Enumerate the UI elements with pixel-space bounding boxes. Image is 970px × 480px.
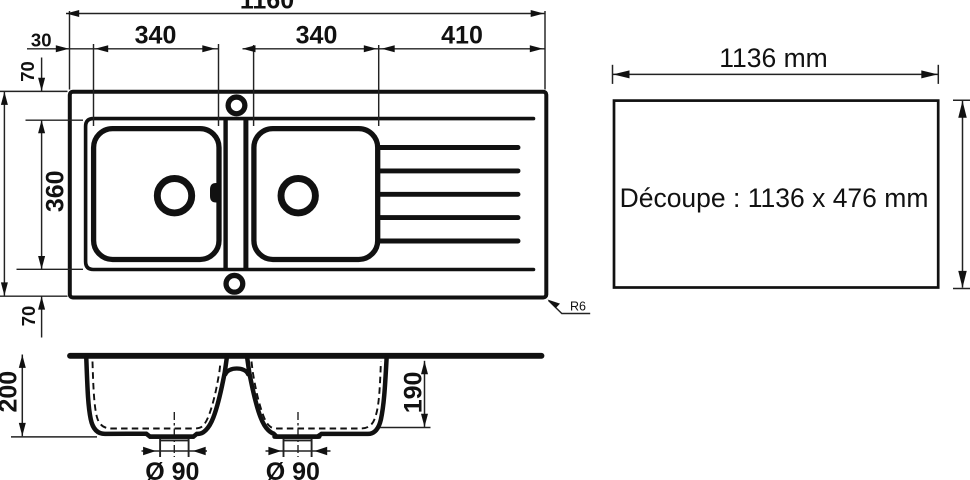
svg-text:340: 340: [296, 22, 338, 50]
svg-text:410: 410: [441, 22, 483, 50]
svg-text:1160: 1160: [240, 0, 294, 15]
svg-text:Ø 90: Ø 90: [266, 458, 320, 480]
svg-text:30: 30: [31, 29, 52, 50]
svg-text:Ø 90: Ø 90: [145, 458, 199, 480]
svg-text:190: 190: [400, 372, 428, 414]
svg-text:340: 340: [135, 22, 177, 50]
svg-text:Découpe : 1136 x 476 mm: Découpe : 1136 x 476 mm: [620, 183, 929, 213]
svg-text:360: 360: [41, 170, 69, 212]
svg-text:70: 70: [18, 306, 39, 327]
svg-text:1136 mm: 1136 mm: [719, 43, 828, 73]
svg-text:R6: R6: [570, 300, 586, 314]
svg-text:70: 70: [17, 61, 38, 82]
svg-text:200: 200: [0, 371, 23, 413]
